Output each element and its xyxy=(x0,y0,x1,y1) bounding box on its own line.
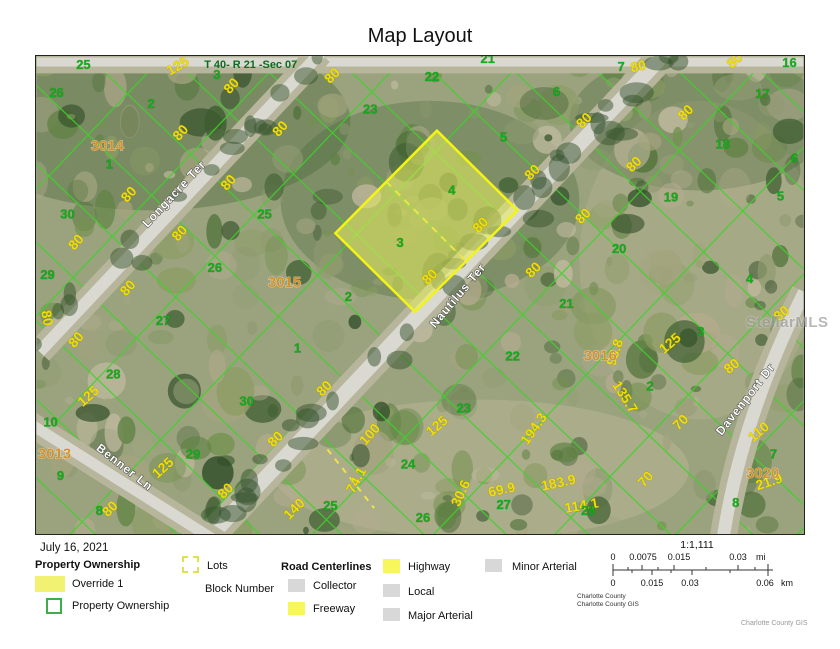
property-ownership-swatch xyxy=(46,598,62,614)
block-number-label: 3016 xyxy=(584,348,617,365)
lot-number-label: 7 xyxy=(618,59,625,74)
block-number-label: 3013 xyxy=(38,445,71,462)
map-frame: 1258080808080808080808080808080808080808… xyxy=(35,55,805,535)
scale-km-3: 0.06 xyxy=(756,578,774,588)
scale-km-2: 0.03 xyxy=(681,578,699,588)
lot-number-label: 27 xyxy=(156,313,170,328)
major-arterial-swatch xyxy=(383,608,400,621)
legend-override-label: Override 1 xyxy=(72,578,123,590)
scale-km-unit: km xyxy=(781,578,793,588)
legend-property-ownership-header: Property Ownership xyxy=(35,559,140,571)
scale-mi-3: 0.03 xyxy=(729,552,747,562)
lot-number-label: 6 xyxy=(553,84,560,99)
lot-number-label: 26 xyxy=(208,260,222,275)
lot-number-label: 3 xyxy=(396,235,403,250)
lot-number-label: 2 xyxy=(345,289,352,304)
lot-number-label: 1 xyxy=(294,341,301,356)
scale-ratio: 1:1,111 xyxy=(657,539,737,551)
legend-block-number-label: Block Number xyxy=(205,583,274,595)
lot-number-label: 30 xyxy=(240,394,254,409)
block-number-label: 3020 xyxy=(746,465,779,482)
block-number-label: 3015 xyxy=(268,274,301,291)
minor-arterial-swatch xyxy=(485,559,502,572)
legend-lots-label: Lots xyxy=(207,560,228,572)
legend-highway-label: Highway xyxy=(408,561,450,573)
lot-number-label: 25 xyxy=(76,57,90,72)
section-township-label: T 40- R 21 -Sec 07 xyxy=(204,59,297,71)
lot-number-label: 24 xyxy=(401,456,416,471)
collector-swatch xyxy=(288,579,305,592)
lot-number-label: 2 xyxy=(646,379,653,394)
credit-line-2: Charlotte County GIS xyxy=(577,601,639,609)
legend-local-label: Local xyxy=(408,586,434,598)
scale-mi-unit: mi xyxy=(756,552,766,562)
page-title: Map Layout xyxy=(0,25,840,48)
lots-swatch xyxy=(182,556,199,573)
lot-number-label: 5 xyxy=(777,188,784,203)
lot-number-label: 4 xyxy=(448,182,456,197)
lot-number-label: 21 xyxy=(559,296,573,311)
local-swatch xyxy=(383,584,400,597)
legend-road-centerlines-header: Road Centerlines xyxy=(281,561,371,573)
lot-number-label: 6 xyxy=(791,151,798,166)
lot-number-label: 25 xyxy=(257,206,271,221)
scale-mi-0: 0 xyxy=(610,552,615,562)
lot-number-label: 3 xyxy=(697,324,704,339)
lot-number-label: 8 xyxy=(732,495,739,510)
credits: Charlotte County Charlotte County GIS xyxy=(577,593,639,609)
lot-number-label: 9 xyxy=(57,468,64,483)
lot-number-label: 7 xyxy=(770,446,777,461)
legend-property-ownership-label: Property Ownership xyxy=(72,600,169,612)
scale-mi-2: 0.015 xyxy=(668,552,691,562)
lot-number-label: 30 xyxy=(60,206,74,221)
lot-number-label: 8 xyxy=(96,503,103,518)
freeway-swatch xyxy=(288,602,305,615)
scale-km-1: 0.015 xyxy=(641,578,664,588)
legend-major-arterial-label: Major Arterial xyxy=(408,610,473,622)
dimension-label: 80 xyxy=(38,309,56,327)
lot-number-label: 23 xyxy=(457,401,471,416)
lot-number-label: 29 xyxy=(186,446,200,461)
lot-number-label: 17 xyxy=(755,86,769,101)
lot-number-label: 23 xyxy=(363,102,377,117)
watermark: StellarMLS xyxy=(746,314,829,331)
lot-number-label: 10 xyxy=(43,414,57,429)
legend-collector-label: Collector xyxy=(313,580,356,592)
scale-km-0: 0 xyxy=(610,578,615,588)
map-canvas: 1258080808080808080808080808080808080808… xyxy=(36,56,804,534)
scale-bar xyxy=(608,564,780,577)
legend-minor-arterial-label: Minor Arterial xyxy=(512,561,577,573)
lot-number-label: 16 xyxy=(782,56,796,70)
lot-number-label: 26 xyxy=(416,510,430,525)
map-date: July 16, 2021 xyxy=(40,542,108,554)
lot-number-label: 29 xyxy=(40,267,54,282)
lot-number-label: 22 xyxy=(425,69,439,84)
lot-number-label: 4 xyxy=(746,271,754,286)
lot-number-label: 5 xyxy=(500,130,507,145)
lot-number-label: 2 xyxy=(148,96,155,111)
lot-number-label: 26 xyxy=(49,85,63,100)
lot-number-label: 19 xyxy=(664,189,678,204)
lot-number-label: 22 xyxy=(505,349,519,364)
bottom-right-credit: Charlotte County GIS xyxy=(741,620,808,627)
legend-freeway-label: Freeway xyxy=(313,603,355,615)
credit-line-1: Charlotte County xyxy=(577,593,639,601)
lot-number-label: 28 xyxy=(106,367,120,382)
lot-number-label: 20 xyxy=(612,241,626,256)
lot-number-label: 25 xyxy=(323,498,337,513)
scale-mi-1: 0.0075 xyxy=(629,552,657,562)
block-number-label: 3014 xyxy=(91,138,125,155)
highway-swatch xyxy=(383,559,400,573)
lot-number-label: 1 xyxy=(106,157,113,172)
override-swatch xyxy=(35,576,65,592)
lot-number-label: 21 xyxy=(481,56,495,66)
lot-number-label: 18 xyxy=(716,137,730,152)
lot-number-label: 28 xyxy=(581,503,595,518)
lot-number-label: 27 xyxy=(496,497,510,512)
map-layout-page: Map Layout 12580808080808080808080808080… xyxy=(0,0,840,649)
